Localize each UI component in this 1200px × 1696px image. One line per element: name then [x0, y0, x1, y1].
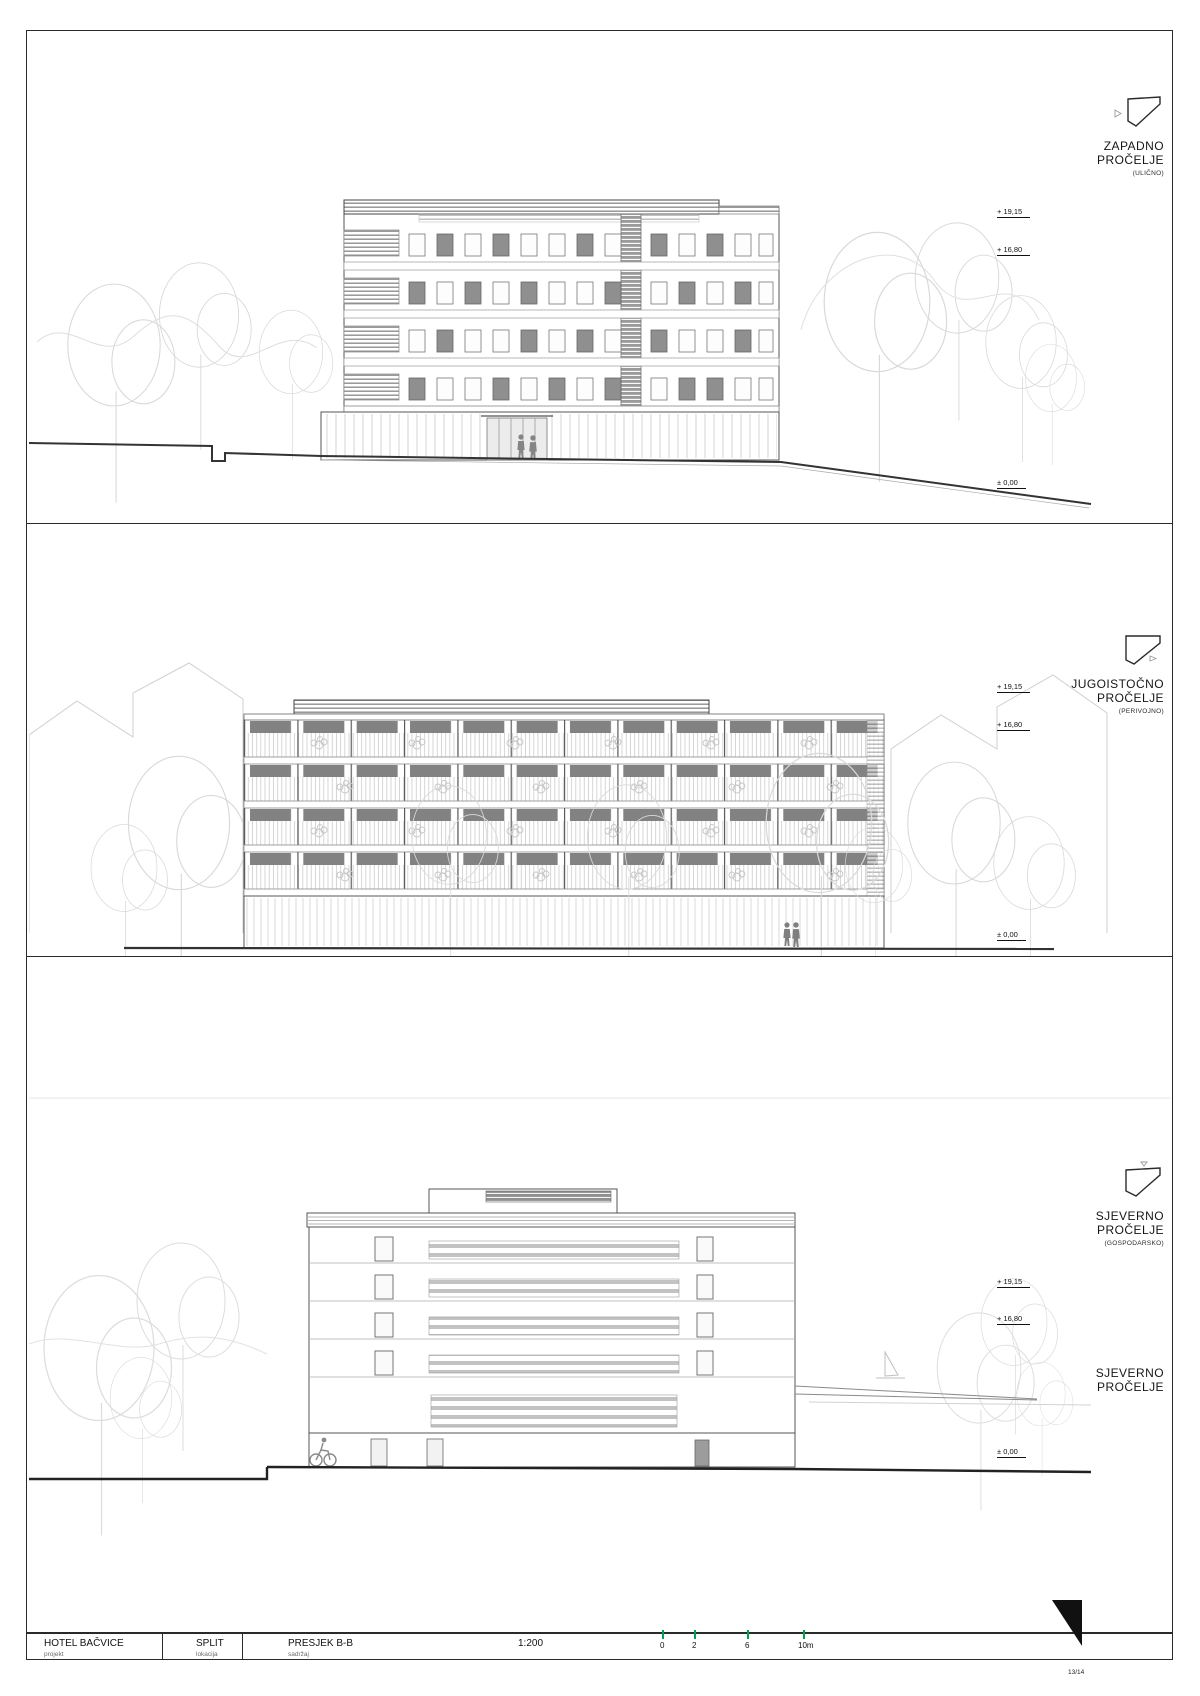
location-caption: lokacija: [196, 1651, 218, 1659]
facade-label-line2: PROČELJE: [1097, 153, 1164, 167]
facade-label-line2: PROČELJE: [1096, 1223, 1164, 1237]
canopy-lines: [795, 1386, 1037, 1400]
building-west: [321, 200, 779, 460]
titleblock-divider: [162, 1632, 163, 1660]
elevation-marker: + 16,80: [997, 1314, 1030, 1325]
facade-label-west: ZAPADNO PROČELJE (ULIČNO): [1097, 96, 1164, 178]
logo-triangle: [1052, 1600, 1082, 1646]
ground-floor: [321, 412, 779, 460]
trees-left: [29, 1243, 267, 1536]
frame-right: [1172, 30, 1173, 1660]
facade-label-sub: (GOSPODARSKO): [1096, 1239, 1164, 1248]
project-caption: projekt: [44, 1651, 64, 1659]
building-southeast: [244, 700, 884, 948]
elevation-marker: ± 0,00: [997, 930, 1026, 941]
trees-left: [37, 263, 333, 503]
content-caption: sadržaj: [288, 1651, 309, 1659]
trees-right: [801, 223, 1085, 482]
floor-row: [344, 374, 779, 412]
drawing-sheet: ZAPADNO PROČELJE (ULIČNO) JUGOISTOČNO PR…: [0, 0, 1200, 1696]
north-elevation-drawing: [29, 956, 1171, 1660]
project-title: HOTEL BAČVICE: [44, 1638, 124, 1649]
sea-and-boat: [809, 1352, 1091, 1405]
facade-label-southeast: JUGOISTOČNO PROČELJE (PERIVOJNO): [1071, 634, 1164, 716]
facade-label-line2: PROČELJE: [1071, 691, 1164, 705]
facade-label-line1: JUGOISTOČNO: [1071, 677, 1164, 691]
floor-row: [344, 326, 779, 366]
ground-line: [124, 948, 1054, 949]
ground-line: [29, 1467, 1091, 1479]
facade-direction-icon: [1071, 634, 1164, 671]
frame-left: [26, 30, 27, 1660]
facade-label-line1: SJEVERNO: [1096, 1366, 1164, 1380]
scalebar-tick: [694, 1630, 696, 1639]
scalebar-tick: [803, 1630, 805, 1639]
facade-label-sub: (ULIČNO): [1097, 169, 1164, 178]
southeast-elevation-drawing: [29, 523, 1171, 956]
elevation-marker: ± 0,00: [997, 478, 1026, 489]
facade-label-line1: ZAPADNO: [1097, 139, 1164, 153]
elevation-marker: + 19,15: [997, 207, 1030, 218]
scalebar-label: 2: [692, 1641, 696, 1650]
floor-row: [244, 764, 884, 808]
scale-value: 1:200: [518, 1638, 543, 1649]
floor-row: [244, 808, 884, 852]
facade-label-north-secondary: SJEVERNO PROČELJE: [1096, 1366, 1164, 1394]
elevation-marker: + 16,80: [997, 720, 1030, 731]
location-value: SPLIT: [196, 1638, 224, 1649]
titleblock-divider: [242, 1632, 243, 1660]
titleblock-bottom-line: [26, 1659, 1173, 1660]
scalebar-tick: [747, 1630, 749, 1639]
scalebar-label: 10m: [798, 1641, 814, 1650]
facade-label-north: SJEVERNO PROČELJE (GOSPODARSKO): [1096, 1160, 1164, 1248]
floor-row: [344, 278, 779, 318]
facade-label-sub: (PERIVOJNO): [1071, 707, 1164, 716]
scalebar-tick: [662, 1630, 664, 1639]
scalebar-label: 0: [660, 1641, 664, 1650]
facade-direction-icon: [1096, 1160, 1164, 1203]
facade-direction-icon: [1097, 96, 1164, 133]
floor-row: [344, 230, 779, 270]
scalebar-label: 6: [745, 1641, 749, 1650]
elevation-marker: + 16,80: [997, 245, 1030, 256]
elevation-marker: + 19,15: [997, 1277, 1030, 1288]
elevation-marker: + 19,15: [997, 682, 1030, 693]
ground-floor: [244, 896, 884, 948]
floor-row: [244, 720, 884, 764]
content-value: PRESJEK B-B: [288, 1638, 353, 1649]
facade-label-line1: SJEVERNO: [1096, 1209, 1164, 1223]
facade-label-line2: PROČELJE: [1096, 1380, 1164, 1394]
building-north: [307, 1189, 1037, 1467]
page-number: 13/14: [1068, 1669, 1084, 1676]
titleblock-top-line: [26, 1632, 1173, 1634]
floor-row: [244, 852, 884, 896]
elevation-marker: ± 0,00: [997, 1447, 1026, 1458]
west-elevation-drawing: [29, 30, 1171, 522]
ground-floor: [309, 1433, 795, 1467]
